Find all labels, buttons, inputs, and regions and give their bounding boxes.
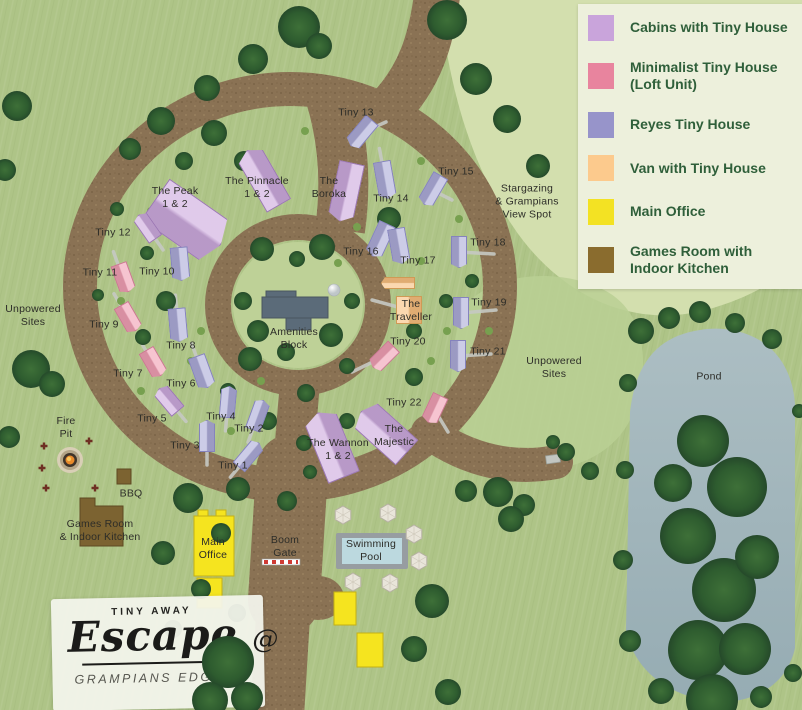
legend-panel: Cabins with Tiny HouseMinimalist Tiny Ho… [578,4,802,289]
swimming-pool-shape [336,533,408,569]
legend-label-1: Minimalist Tiny House (Loft Unit) [630,59,790,94]
yellow-structure-2 [357,633,383,667]
legend-label-2: Reyes Tiny House [630,116,750,134]
legend-item-1: Minimalist Tiny House (Loft Unit) [588,59,790,94]
water-tank [328,284,340,296]
campground-map: Stargazing & Grampians View SpotUnpowere… [0,0,802,710]
brand-sub-text: GRAMPIANS EDGE [74,669,252,687]
legend-label-5: Games Room with Indoor Kitchen [630,243,790,278]
yellow-structure-1 [334,592,356,625]
brand-logo: TINY AWAY Escape @ GRAMPIANS EDGE [51,595,265,710]
legend-swatch-0 [588,15,614,41]
legend-swatch-4 [588,199,614,225]
bbq-building [117,469,131,484]
legend-swatch-5 [588,247,614,273]
legend-item-4: Main Office [588,199,790,225]
legend-item-3: Van with Tiny House [588,155,790,181]
at-symbol: @ [252,624,279,655]
legend-item-5: Games Room with Indoor Kitchen [588,243,790,278]
brand-main-text: Escape [67,609,239,662]
legend-swatch-3 [588,155,614,181]
legend-swatch-2 [588,112,614,138]
legend-item-0: Cabins with Tiny House [588,15,790,41]
boom-gate-bar [262,559,300,565]
legend-label-3: Van with Tiny House [630,160,766,178]
logo-divider [82,661,210,665]
legend-swatch-1 [588,63,614,89]
legend-item-2: Reyes Tiny House [588,112,790,138]
legend-label-4: Main Office [630,203,705,221]
legend-label-0: Cabins with Tiny House [630,19,788,37]
